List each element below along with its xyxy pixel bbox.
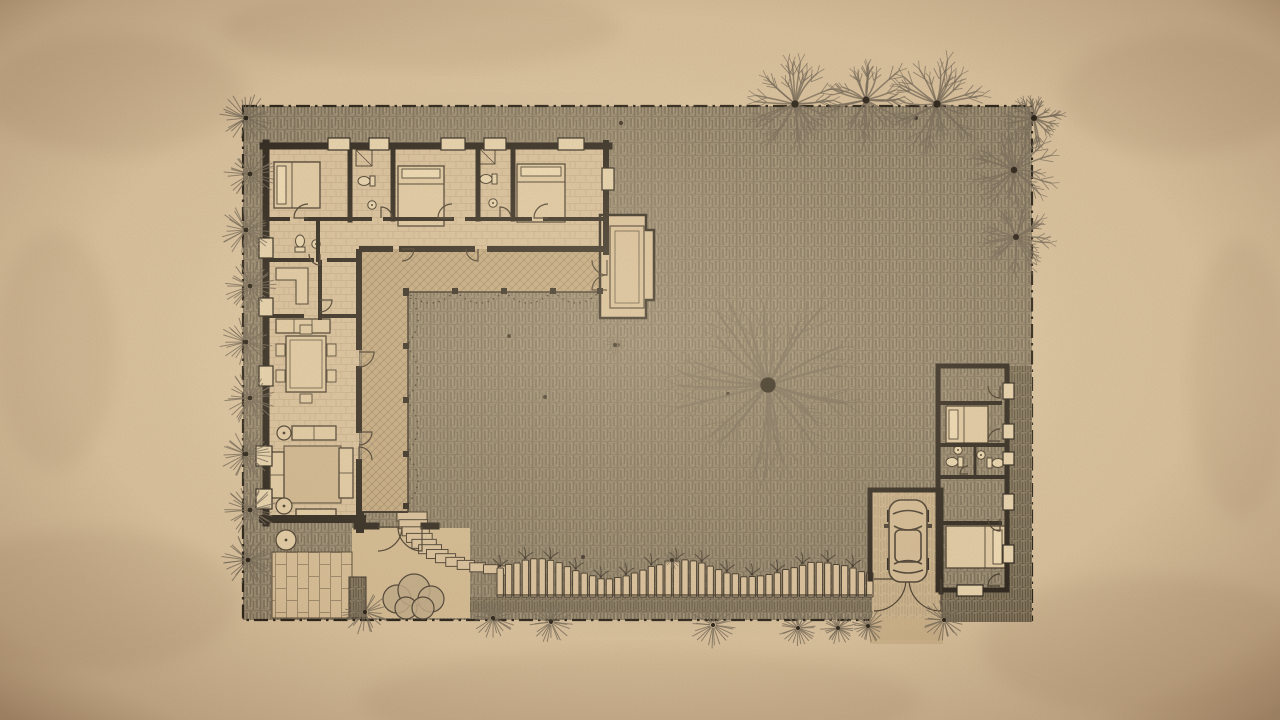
floor-plan-canvas (0, 0, 1280, 720)
vignette-overlay (0, 0, 1280, 720)
site-plan-drawing (0, 0, 1280, 720)
